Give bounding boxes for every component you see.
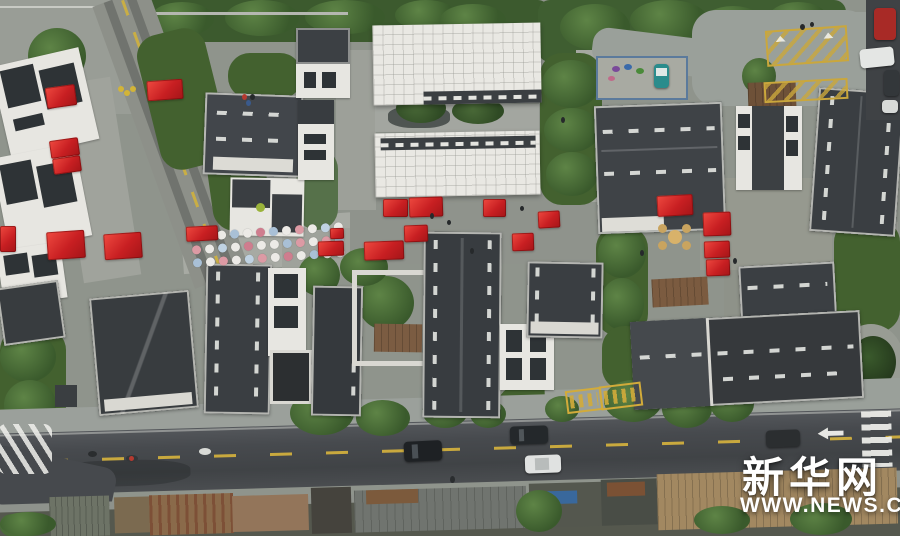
red-canopy — [146, 79, 183, 101]
golden-table-cluster — [658, 222, 694, 252]
roof-ridge-dashes — [217, 111, 293, 118]
red-canopy — [538, 210, 561, 228]
umbrella — [231, 242, 241, 252]
old-roof — [311, 487, 352, 534]
red-canopy — [703, 212, 732, 237]
person — [800, 24, 805, 30]
umbrella-yellow — [130, 86, 136, 92]
tree — [516, 490, 562, 532]
building-roof-long — [422, 232, 502, 419]
window — [530, 358, 546, 380]
tree — [598, 228, 646, 278]
old-roof-brown — [607, 482, 645, 497]
cyclist — [88, 451, 97, 457]
road-text-marking — [599, 382, 644, 411]
roof-section — [232, 179, 270, 208]
umbrella — [232, 255, 242, 265]
building-roof — [0, 280, 66, 346]
red-canopy — [103, 232, 143, 261]
roof-ridge-line — [459, 238, 464, 412]
windshield — [519, 429, 524, 441]
red-canopy — [186, 225, 219, 242]
red-canopy — [404, 225, 429, 243]
red-canopy — [656, 194, 693, 217]
red-canopy — [483, 199, 506, 217]
trees — [228, 53, 302, 99]
umbrella — [205, 244, 215, 254]
red-canopy — [706, 259, 731, 277]
building-roof — [204, 263, 273, 414]
car-roof — [656, 68, 667, 76]
arrow-mark — [775, 35, 785, 42]
motorbike-white — [199, 448, 211, 455]
umbrella — [321, 223, 331, 233]
umbrella — [192, 245, 202, 255]
umbrella — [296, 251, 306, 261]
person — [430, 213, 434, 219]
red-canopy — [46, 230, 86, 261]
white-house — [736, 106, 802, 190]
red-canopy — [704, 241, 731, 259]
umbrella — [270, 240, 280, 250]
umbrella-yellow — [118, 86, 124, 92]
news-url-text: WWW.NEWS.CN — [740, 494, 900, 518]
person — [810, 22, 814, 27]
clerestory-band — [424, 90, 542, 105]
play-item-pink — [608, 76, 615, 81]
car-white — [882, 100, 898, 113]
roof-ridge-dashes — [603, 126, 715, 134]
white-wall-band — [213, 157, 293, 173]
building-roof-long — [630, 310, 864, 410]
no-parking-hatch — [765, 25, 849, 67]
person-blue — [246, 100, 251, 106]
old-roof — [49, 496, 110, 536]
glass-roof-panel — [3, 252, 30, 275]
umbrella — [219, 256, 229, 266]
window — [786, 140, 798, 156]
window — [304, 72, 316, 88]
window — [506, 358, 522, 380]
motorbike — [126, 455, 138, 462]
wooden-deck-mural — [374, 324, 422, 353]
white-wall-band — [104, 392, 193, 412]
car-dark — [404, 440, 443, 462]
roof-ridge-line — [601, 146, 717, 152]
roof-ridge-dashes — [486, 240, 491, 410]
car-roof — [535, 458, 549, 470]
roof-ridge-dashes — [432, 240, 437, 410]
red-canopy — [45, 84, 78, 109]
side-street — [866, 0, 900, 120]
white-pavilion-lower-roof — [374, 131, 540, 198]
car-white — [525, 454, 562, 473]
red-canopy — [409, 196, 444, 217]
tree — [225, 0, 299, 36]
car-teal — [654, 64, 669, 88]
play-item-blue — [624, 64, 632, 70]
umbrella — [270, 253, 280, 263]
aerial-photo: 新华网 WWW.NEWS.CN — [0, 0, 900, 536]
umbrella — [244, 241, 254, 251]
windshield — [412, 444, 419, 458]
umbrella — [295, 225, 305, 235]
window-band — [13, 113, 45, 131]
white-house — [268, 268, 306, 356]
road-text-glyphs — [569, 392, 598, 408]
old-roof — [149, 493, 234, 535]
window — [738, 114, 750, 128]
no-parking-hatch — [764, 78, 849, 103]
wooden-deck — [651, 277, 708, 308]
person — [561, 117, 565, 123]
umbrella — [243, 228, 253, 238]
umbrella — [218, 243, 228, 253]
rider-red — [129, 456, 134, 461]
car-red — [874, 8, 896, 40]
roof-strip — [752, 106, 784, 190]
window — [506, 330, 522, 352]
golden-seat — [658, 224, 667, 233]
pedestrian — [450, 476, 455, 483]
person-red — [242, 94, 247, 100]
tree — [0, 512, 56, 536]
umbrella — [258, 253, 268, 263]
umbrella — [283, 252, 293, 262]
roof-ridge-dashes — [747, 282, 827, 290]
white-pavilion-upper-roof — [372, 23, 541, 106]
old-roof — [232, 494, 309, 532]
red-canopy — [364, 240, 405, 260]
umbrella — [308, 224, 318, 234]
play-item-purple — [612, 66, 620, 72]
umbrella — [206, 257, 216, 267]
umbrella — [245, 254, 255, 264]
white-house — [298, 100, 334, 180]
building-roof — [89, 290, 199, 416]
play-plaza — [596, 56, 688, 100]
inner-court — [270, 350, 312, 404]
van-white — [859, 46, 895, 68]
red-canopy — [330, 228, 344, 239]
golden-seat — [682, 224, 691, 233]
white-wall-band — [530, 321, 598, 334]
roof-ridge-dashes — [216, 137, 292, 144]
road-text-marking — [565, 387, 604, 414]
crosswalk-left — [0, 424, 52, 474]
ball-green — [256, 203, 265, 212]
roof-ridge-dashes — [254, 272, 260, 406]
window — [274, 274, 298, 298]
person — [733, 258, 737, 264]
building-roof — [203, 92, 304, 177]
person — [250, 94, 255, 100]
white-wall-band — [602, 216, 664, 232]
tree — [546, 152, 598, 196]
person — [470, 248, 474, 254]
red-canopy — [318, 241, 345, 257]
old-roof — [601, 478, 658, 526]
car-dark — [884, 70, 899, 96]
play-item-green — [636, 68, 644, 74]
window — [304, 134, 326, 144]
tree — [544, 108, 600, 152]
roof-ridge-dashes — [214, 272, 220, 406]
car-dark — [510, 425, 549, 444]
roof-ridge-dashes — [822, 96, 835, 224]
roof-ridge-dashes — [723, 371, 843, 381]
tree — [542, 60, 600, 108]
glass-roof-panel — [0, 159, 38, 204]
umbrella-yellow — [124, 90, 130, 96]
window — [322, 72, 336, 88]
person — [447, 220, 451, 225]
roof-section — [298, 100, 334, 124]
glass-roof-panel — [0, 64, 41, 109]
white-house — [296, 28, 350, 98]
wall-line — [138, 12, 348, 15]
red-canopy — [512, 233, 535, 252]
golden-table — [668, 230, 682, 244]
garden-shed — [55, 385, 77, 407]
road-text-glyphs — [603, 387, 638, 405]
umbrella — [257, 241, 267, 251]
golden-seat — [682, 241, 691, 250]
golden-seat — [658, 241, 667, 250]
window — [738, 136, 750, 150]
roof-ridge-line — [851, 96, 862, 228]
old-roof — [354, 486, 527, 533]
building-roof — [526, 261, 603, 338]
umbrella — [282, 226, 292, 236]
tree — [356, 400, 410, 436]
umbrella — [308, 237, 318, 247]
red-canopy — [383, 199, 408, 217]
watermark: 新华网 WWW.NEWS.CN — [738, 444, 898, 520]
hip-roof — [296, 28, 350, 64]
window — [274, 306, 298, 328]
clerestory-band — [381, 136, 536, 151]
umbrella — [269, 227, 279, 237]
window — [304, 150, 326, 160]
old-roof-brown — [366, 489, 418, 504]
umbrella — [230, 229, 240, 239]
window — [786, 116, 798, 132]
umbrella — [256, 228, 266, 238]
umbrella — [283, 239, 293, 249]
umbrella — [296, 238, 306, 248]
person — [640, 250, 644, 256]
umbrella — [193, 258, 203, 268]
red-canopy — [0, 226, 16, 252]
roof-ridge-dashes — [604, 168, 716, 176]
person — [520, 206, 524, 211]
arrow-mark — [823, 32, 833, 39]
